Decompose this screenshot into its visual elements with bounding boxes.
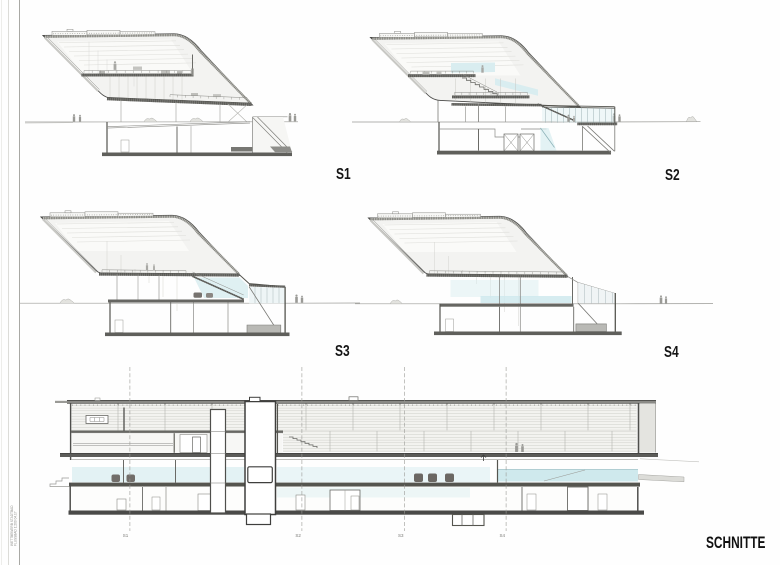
svg-text:FLUSSBAD 1:200 04.17: FLUSSBAD 1:200 04.17 xyxy=(14,511,18,546)
